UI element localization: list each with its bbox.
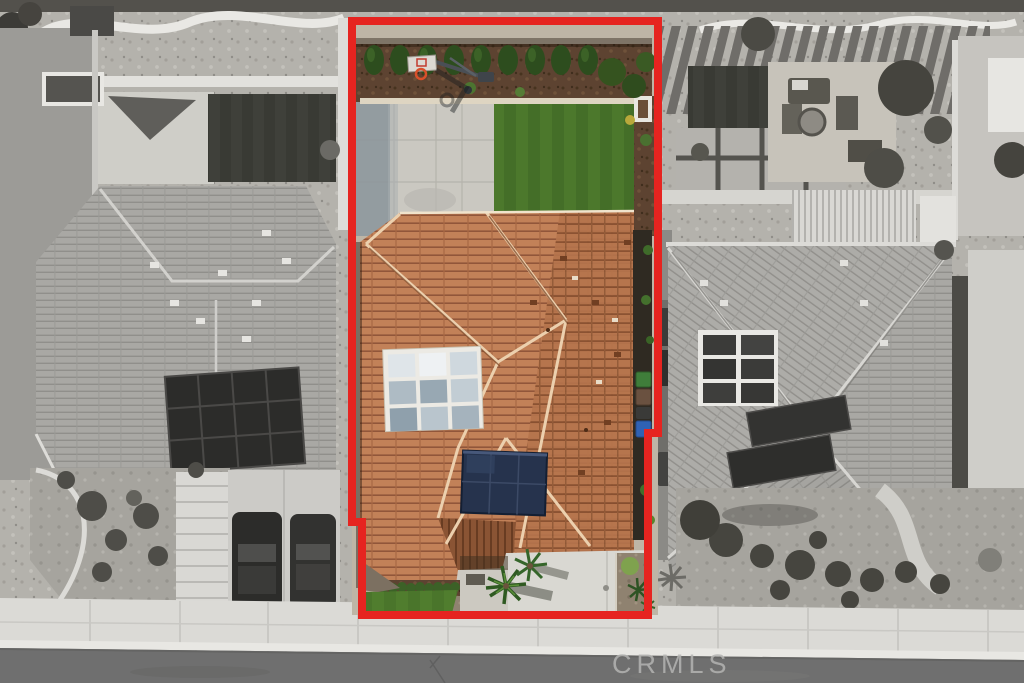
left-backyard-lawn — [208, 94, 336, 182]
front-lawn-tint — [362, 590, 458, 613]
doormat — [466, 574, 485, 585]
fire-pit — [799, 109, 825, 135]
road-patch — [130, 666, 270, 678]
top-foliage-band — [0, 0, 1024, 12]
aerial-scene — [0, 0, 1024, 683]
tree — [924, 116, 952, 144]
subject-property — [352, 17, 658, 615]
skylight — [383, 346, 484, 431]
right-neighbor-front-yard — [658, 488, 1024, 612]
white-roof-panel — [988, 58, 1024, 132]
tree — [864, 148, 904, 188]
garden-wall — [360, 98, 648, 104]
tree-shadow — [722, 504, 818, 526]
planter-box — [634, 96, 652, 122]
turf-patch — [688, 66, 772, 136]
patio-stain — [404, 188, 456, 212]
crmls-watermark: CRMLS — [612, 649, 732, 680]
tree — [741, 17, 775, 51]
tree — [878, 60, 934, 116]
stain — [603, 585, 609, 591]
backyard-lawn — [494, 84, 638, 228]
trash-bin-brown — [636, 389, 651, 405]
tree — [18, 2, 42, 26]
bush — [320, 140, 340, 160]
hedge — [952, 276, 968, 506]
cushion — [792, 80, 808, 90]
left-neighbor-front-yard — [30, 462, 340, 612]
chair — [836, 96, 858, 130]
equipment — [934, 240, 954, 260]
bush — [691, 143, 709, 161]
right-neighbor-skylight — [698, 330, 778, 406]
left-neighbor-solar-array — [165, 367, 305, 472]
trash-bin-gray — [636, 407, 651, 419]
cypress-trees — [364, 45, 598, 75]
side-wall — [968, 250, 1024, 510]
aerial-photo: CRMLS — [0, 0, 1024, 683]
white-cover — [920, 196, 956, 242]
trash-bin-green — [636, 372, 651, 387]
entry-steps — [176, 472, 232, 612]
vehicle — [290, 514, 336, 608]
shade-edge — [388, 96, 398, 236]
solar-panel-array — [461, 451, 547, 516]
patio-cover — [792, 190, 916, 242]
vehicle — [232, 512, 282, 608]
